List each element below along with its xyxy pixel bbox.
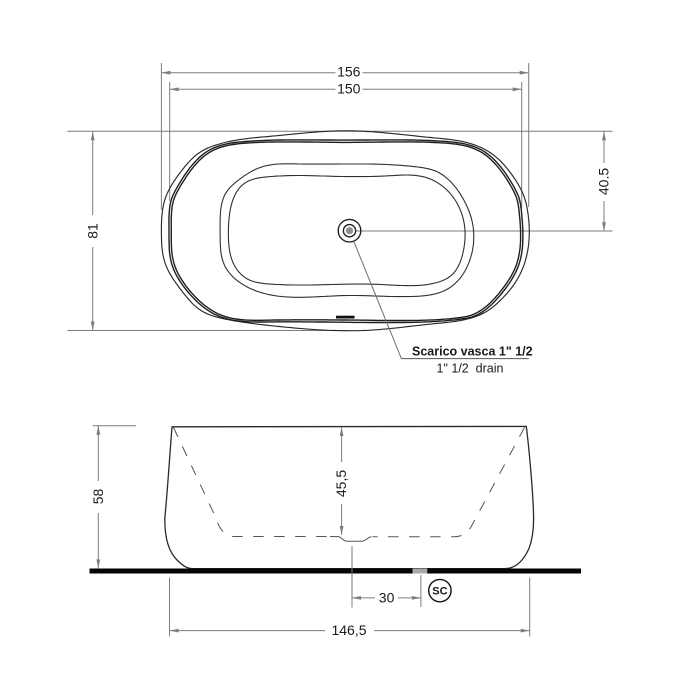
svg-text:150: 150 (337, 81, 361, 97)
svg-text:Scarico vasca 1" 1/2: Scarico vasca 1" 1/2 (412, 345, 533, 359)
svg-text:146,5: 146,5 (331, 622, 366, 638)
svg-text:30: 30 (379, 590, 395, 606)
svg-text:1" 1/2 drain: 1" 1/2 drain (437, 362, 504, 376)
svg-text:40.5: 40.5 (596, 168, 612, 195)
svg-text:45,5: 45,5 (333, 470, 349, 497)
svg-text:58: 58 (90, 489, 106, 505)
svg-text:156: 156 (337, 64, 361, 80)
svg-text:SC: SC (432, 586, 447, 598)
svg-text:81: 81 (85, 223, 101, 239)
